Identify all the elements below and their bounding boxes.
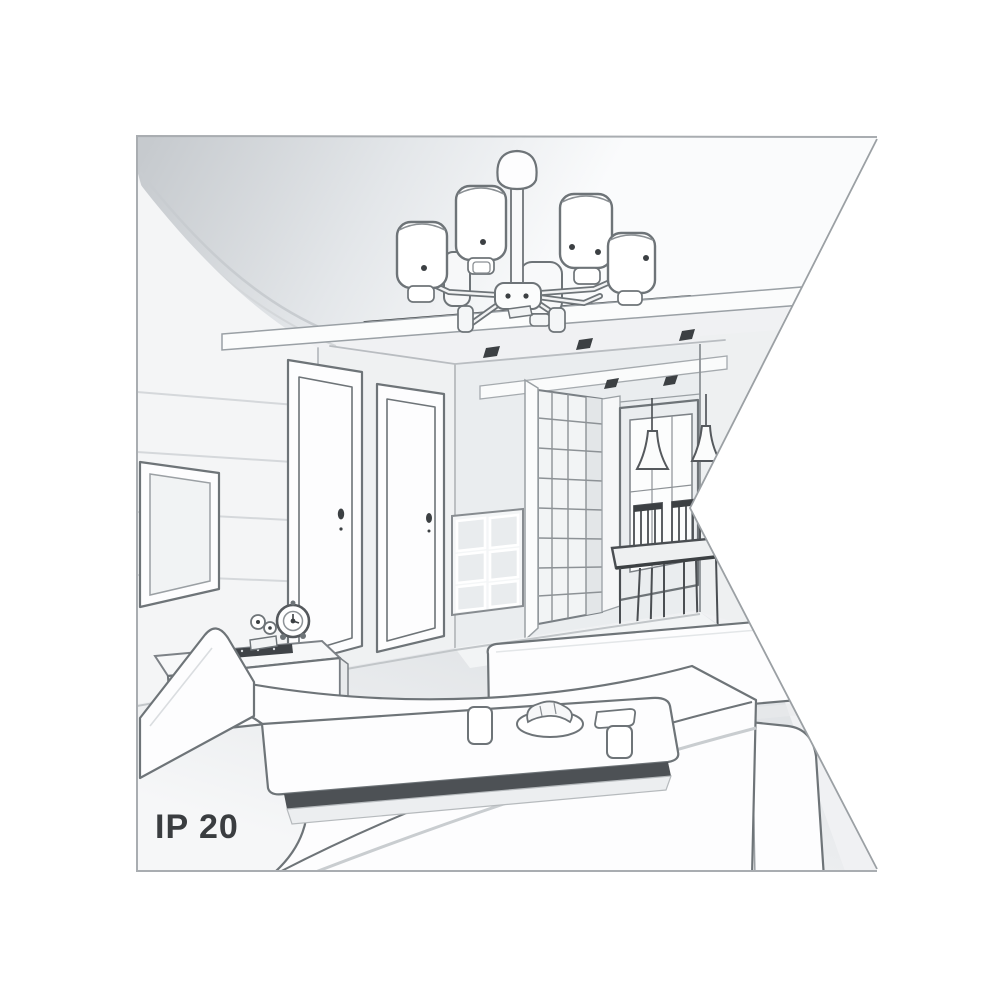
door-handle [338,509,344,520]
product-illustration: IP 20 [0,0,1000,1000]
grid-wardrobe [538,390,602,624]
ip-rating-label: IP 20 [155,808,239,846]
room-scene [137,136,877,878]
door-keyhole [339,527,342,530]
cup [607,726,632,758]
clock-foot [280,634,286,640]
door-keyhole [428,530,431,533]
hallway-jamb [525,380,538,640]
cup [468,707,492,744]
hallway-pillar [602,396,620,612]
tv-screen [140,462,219,607]
chandelier-canopy [497,151,536,189]
chandelier-stem [511,184,523,292]
hallway-right-wall [700,326,830,650]
clock-foot [300,633,306,639]
drawer-cabinet [452,509,523,615]
clock-button [291,601,296,606]
room-sketch-svg: IP 20 [0,0,1000,1000]
door-right [377,384,444,652]
door-handle [426,513,432,523]
